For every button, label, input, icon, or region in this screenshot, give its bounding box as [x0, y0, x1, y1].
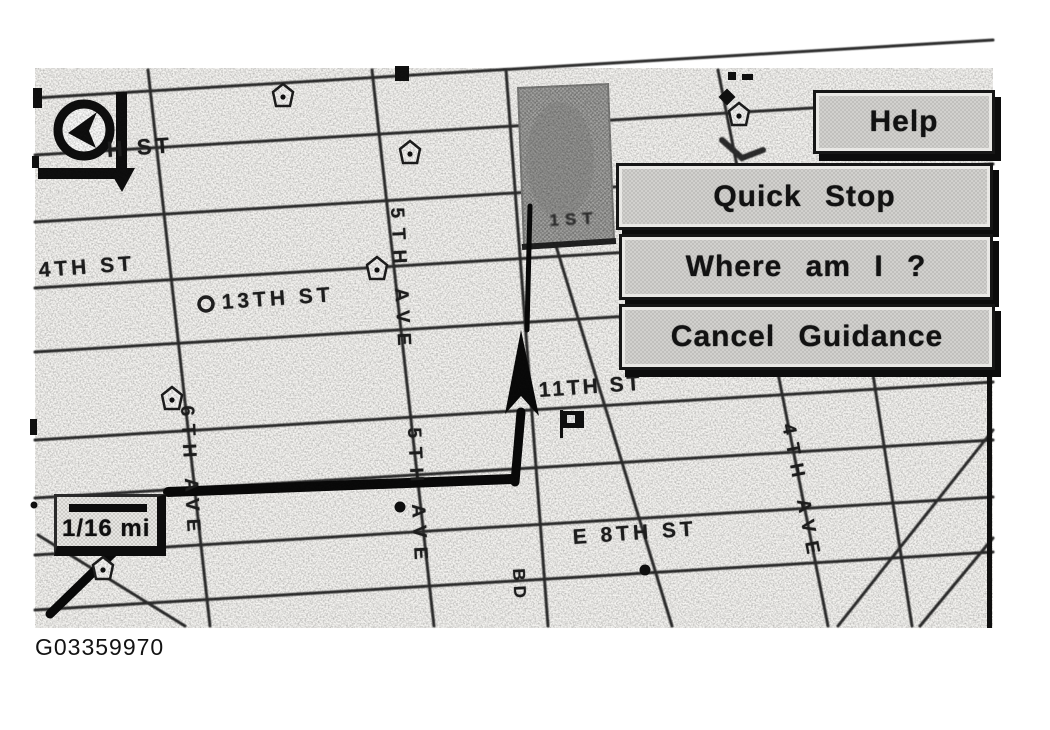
where-am-i-button[interactable]: Where am I ?: [619, 234, 993, 300]
figure-caption: G03359970: [35, 634, 164, 661]
navigation-screen: H ST 4TH ST 13TH ST 11TH ST E 8TH ST 1ST…: [0, 0, 1050, 730]
scale-bar: [69, 504, 147, 512]
street-label-bd-fragment: BD: [508, 568, 530, 604]
quick-stop-button[interactable]: Quick Stop: [616, 163, 993, 230]
street-label-h-st: H ST: [106, 132, 174, 163]
map-scale-indicator: 1/16 mi: [54, 494, 166, 556]
scale-label: 1/16 mi: [62, 515, 150, 543]
help-button[interactable]: Help: [813, 90, 995, 154]
street-label-1st-fragment: 1ST: [549, 208, 599, 231]
cancel-guidance-button[interactable]: Cancel Guidance: [619, 304, 995, 370]
